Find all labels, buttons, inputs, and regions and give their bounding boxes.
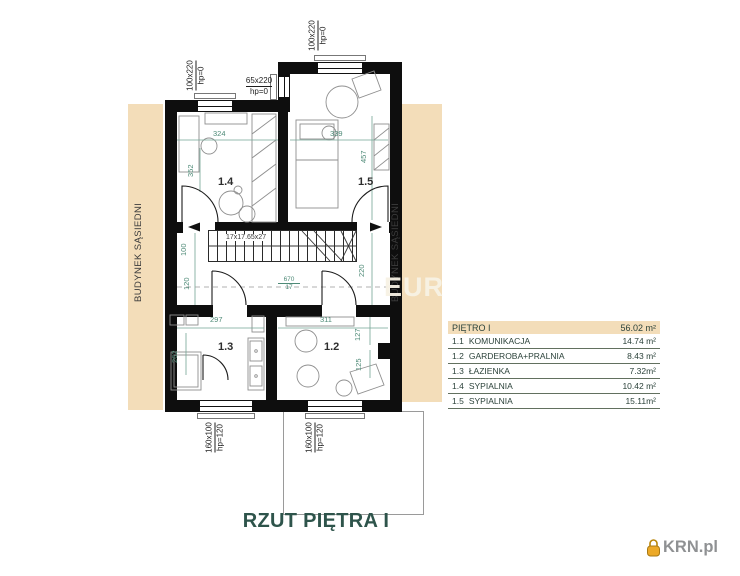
legend-row-num: 1.3	[452, 366, 464, 376]
legend-row-num: 1.1	[452, 336, 464, 346]
area-legend: PIĘTRO I 56.02 m² 1.1 KOMUNIKACJA 14.74 …	[448, 321, 660, 409]
legend-row: 1.1 KOMUNIKACJA 14.74 m²	[448, 334, 660, 349]
window-hp: hp=120	[315, 424, 324, 451]
window-hp: hp=0	[196, 66, 205, 84]
window-hp: hp=0	[318, 26, 327, 44]
room-label-14: 1.4	[218, 176, 233, 188]
legend-row-num: 1.4	[452, 381, 464, 391]
dim-457: 457	[360, 145, 368, 163]
room-label-12: 1.2	[324, 341, 339, 353]
window-size: 160x100	[205, 422, 216, 453]
dim-670-17: 670 17	[278, 276, 300, 291]
stairs-label: 17x17.65x27	[224, 234, 268, 241]
legend-row-name: SYPIALNIA	[469, 396, 513, 406]
plan-linework	[0, 0, 740, 576]
window-label-bottom-right: 160x100 hp=120	[305, 414, 325, 462]
krn-logo-text: KRN.pl	[663, 538, 718, 557]
legend-row-num: 1.5	[452, 396, 464, 406]
padlock-icon	[646, 538, 661, 557]
legend-row: 1.2 GARDEROBA+PRALNIA 8.43 m²	[448, 349, 660, 364]
legend-row-area: 14.74 m²	[622, 336, 656, 346]
window-size: 160x100	[305, 422, 316, 453]
legend-row-name: SYPIALNIA	[469, 381, 513, 391]
legend-row-area: 8.43 m²	[627, 351, 656, 361]
dim-324: 324	[213, 130, 226, 138]
dim-100: 100	[180, 242, 188, 256]
dim-352: 352	[187, 159, 195, 177]
legend-row-area: 7.32m²	[630, 366, 656, 376]
dim-262: 262	[171, 349, 179, 363]
legend-row: 1.3 ŁAZIENKA 7.32m²	[448, 364, 660, 379]
legend-row: 1.4 SYPIALNIA 10.42 m²	[448, 379, 660, 394]
legend-row: 1.5 SYPIALNIA 15.11m²	[448, 394, 660, 409]
legend-header-area: 56.02 m²	[620, 323, 656, 333]
dim-339: 339	[330, 130, 343, 138]
legend-header: PIĘTRO I 56.02 m²	[448, 321, 660, 334]
page-title: RZUT PIĘTRA I	[186, 510, 446, 533]
dim-125: 125	[355, 357, 363, 371]
dim-17: 17	[278, 284, 300, 291]
legend-row-num: 1.2	[452, 351, 464, 361]
room-label-15: 1.5	[358, 176, 373, 188]
window-hp: hp=0	[250, 87, 268, 96]
legend-row-area: 10.42 m²	[622, 381, 656, 391]
window-hp: hp=120	[215, 424, 224, 451]
legend-header-label: PIĘTRO I	[452, 323, 491, 333]
legend-row-area: 15.11m²	[625, 396, 656, 406]
room-label-13: 1.3	[218, 341, 233, 353]
dim-220: 220	[358, 263, 366, 277]
krn-logo: KRN.pl	[646, 538, 718, 557]
dim-120: 120	[183, 276, 191, 290]
window-size: 65x220	[246, 76, 272, 87]
window-label-top-right: 100x220 hp=0	[308, 14, 328, 58]
floor-plan-image: BUDYNEK SĄSIEDNI BUDYNEK SĄSIEDNI 17x17.…	[0, 0, 740, 576]
neighbor-label-left: BUDYNEK SĄSIEDNI	[133, 212, 146, 302]
dim-127: 127	[354, 327, 362, 341]
window-label-top-left: 100x220 hp=0	[186, 54, 206, 98]
legend-row-name: KOMUNIKACJA	[469, 336, 530, 346]
window-label-step: 65x220 hp=0	[240, 76, 278, 96]
watermark: EUR	[384, 272, 444, 303]
window-size: 100x220	[186, 60, 197, 91]
legend-row-name: ŁAZIENKA	[469, 366, 510, 376]
window-label-bottom-left: 160x100 hp=120	[205, 414, 225, 462]
window-size: 100x220	[308, 20, 319, 51]
dim-297: 297	[210, 316, 223, 324]
dim-670: 670	[278, 276, 300, 284]
dim-311: 311	[320, 316, 332, 324]
legend-row-name: GARDEROBA+PRALNIA	[469, 351, 565, 361]
